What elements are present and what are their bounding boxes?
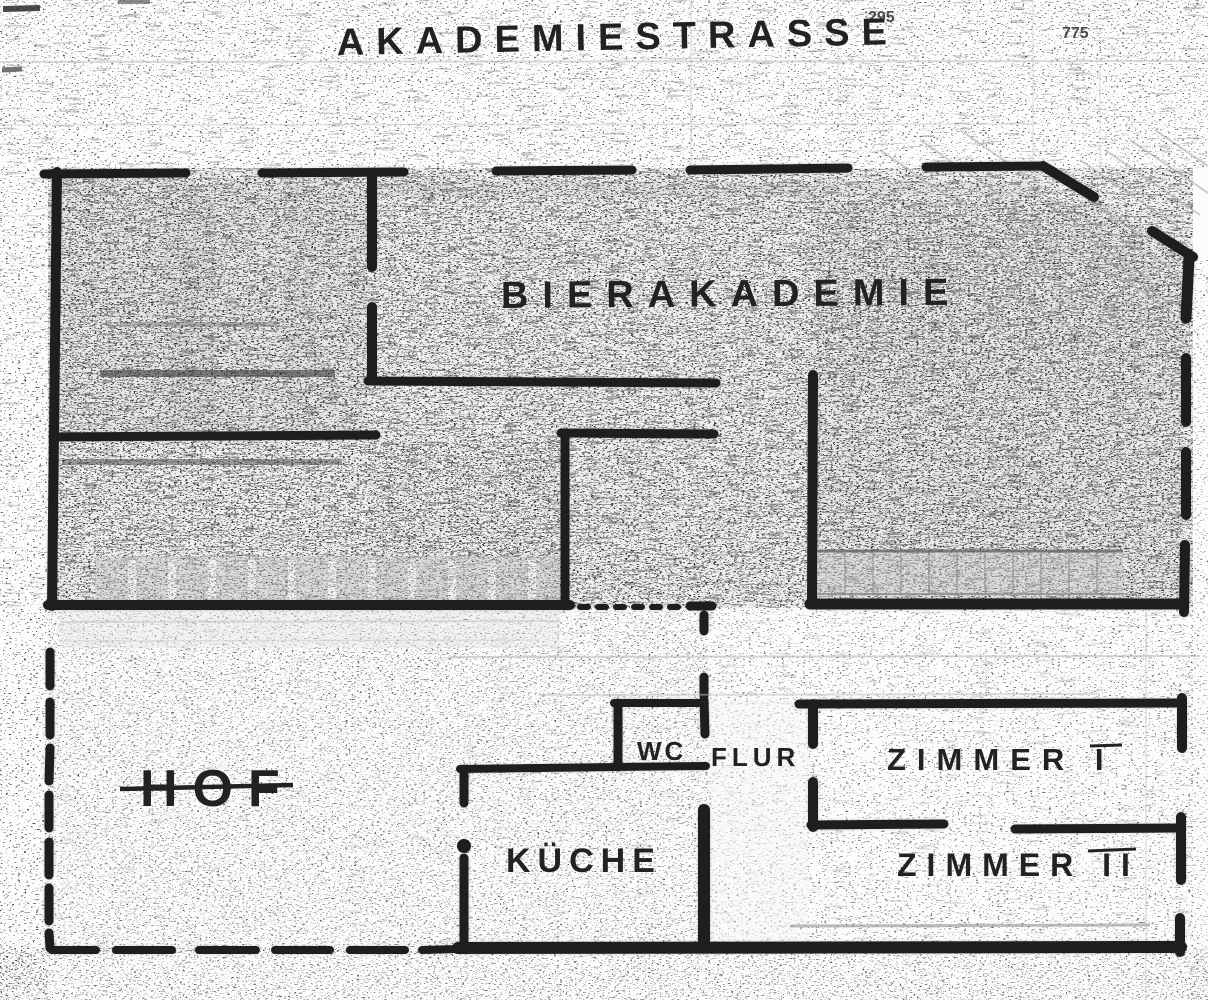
svg-text:ZIMMER I: ZIMMER I [887,742,1115,777]
svg-text:FLUR: FLUR [711,742,800,772]
svg-text:775: 775 [1062,25,1089,42]
svg-text:KÜCHE: KÜCHE [506,842,662,880]
svg-text:ZIMMER II: ZIMMER II [897,847,1140,883]
svg-text:WC: WC [637,736,686,766]
svg-text:BIERAKADEMIE: BIERAKADEMIE [501,272,963,317]
